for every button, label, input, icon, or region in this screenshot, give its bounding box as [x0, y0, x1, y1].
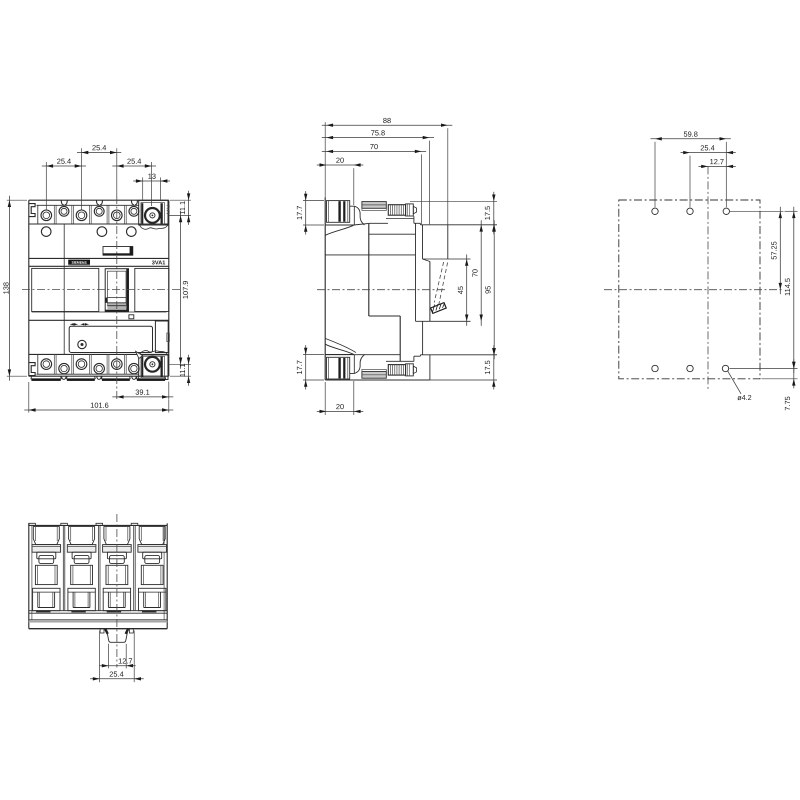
svg-text:12.7: 12.7 [118, 656, 132, 665]
svg-text:20: 20 [336, 156, 344, 165]
svg-text:88: 88 [383, 116, 391, 125]
svg-text:17.5: 17.5 [483, 360, 492, 374]
svg-text:17.5: 17.5 [483, 206, 492, 220]
svg-text:70: 70 [370, 142, 378, 151]
svg-text:25.4: 25.4 [57, 157, 71, 166]
svg-text:25.4: 25.4 [92, 143, 106, 152]
svg-text:11.1: 11.1 [178, 363, 187, 377]
svg-text:114.5: 114.5 [783, 278, 792, 296]
svg-text:3VA1: 3VA1 [152, 260, 166, 266]
svg-text:17.7: 17.7 [295, 360, 304, 374]
svg-text:25.4: 25.4 [700, 143, 714, 152]
svg-text:107.9: 107.9 [181, 281, 190, 300]
svg-text:25.4: 25.4 [109, 670, 123, 679]
svg-text:70: 70 [471, 269, 480, 277]
svg-text:101.6: 101.6 [90, 401, 109, 410]
svg-text:95: 95 [484, 286, 493, 294]
svg-text:20: 20 [336, 402, 344, 411]
svg-text:45: 45 [456, 286, 465, 294]
svg-text:SIEMENS: SIEMENS [71, 261, 87, 265]
svg-text:12.7: 12.7 [710, 157, 724, 166]
svg-text:39.1: 39.1 [135, 388, 149, 397]
svg-text:ø4.2: ø4.2 [737, 393, 751, 402]
svg-text:75.8: 75.8 [371, 128, 385, 137]
svg-text:138: 138 [2, 282, 11, 294]
svg-text:7.75: 7.75 [783, 396, 792, 410]
svg-text:57.25: 57.25 [770, 241, 779, 260]
svg-text:17.7: 17.7 [295, 206, 304, 220]
svg-text:11.1: 11.1 [178, 201, 187, 215]
svg-text:59.8: 59.8 [683, 130, 697, 139]
svg-text:25.4: 25.4 [127, 157, 141, 166]
svg-text:13: 13 [148, 172, 156, 181]
